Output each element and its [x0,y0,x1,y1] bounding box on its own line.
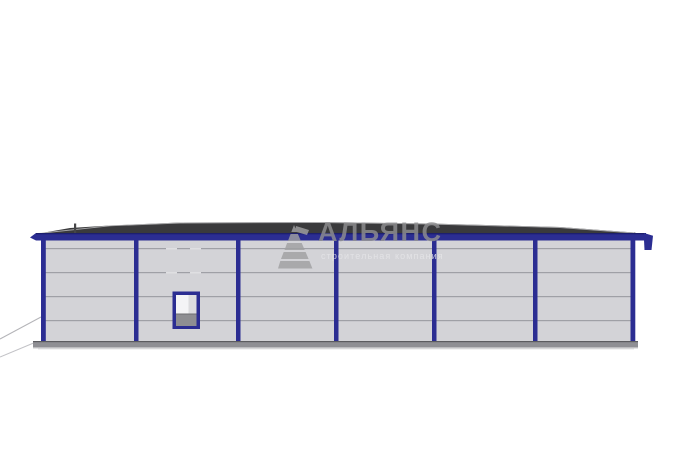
ground-line [0,342,36,357]
building-elevation-render [0,0,700,474]
ground-line [0,317,41,339]
joint-dash [166,248,177,250]
fascia-left-tip [30,233,36,241]
wall-column [533,239,538,342]
wall-column [334,239,339,342]
base-ground-shadow [38,348,634,349]
joint-dash [190,272,201,274]
roof-vent-pipe [74,224,76,234]
fascia-right-corner-cap [644,233,653,250]
window [173,292,201,330]
foundation-base [33,341,638,349]
window-sill-shadow [176,314,197,327]
render-canvas: АЛЬЯНС строительная компания [0,0,700,474]
joint-dash [166,272,177,274]
base-bottom-edge [33,347,638,348]
joint-dash [190,248,201,250]
wall-column [41,239,46,342]
window-sill-edge [176,314,197,315]
window-glass-shade [189,295,197,314]
ground-lines [0,317,41,357]
wall-column [432,239,437,342]
wall-column [236,239,241,342]
fascia-top-edge [36,233,646,234]
base-top-edge [33,341,638,342]
wall-column [134,239,139,342]
wall-column [631,239,636,342]
